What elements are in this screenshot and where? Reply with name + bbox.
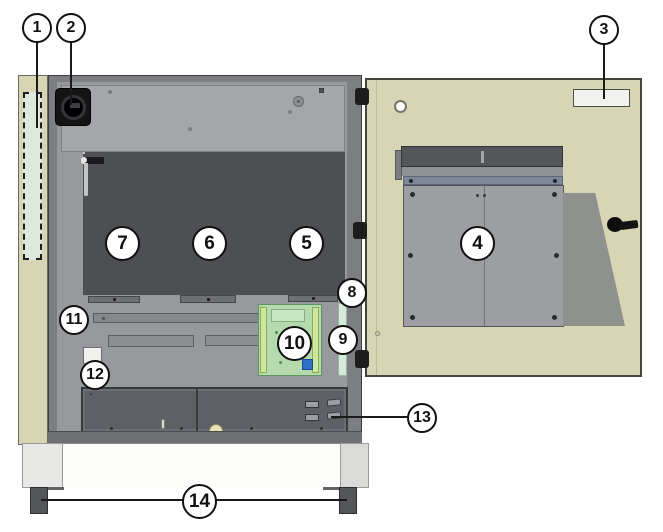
callout-4: 4 [460,226,495,261]
grille-lower-band [402,167,563,176]
pcb-component [271,309,305,322]
cable-slot [205,335,259,346]
base-rail-left [22,443,63,488]
door-hinge [355,88,369,105]
callout-3: 3 [589,15,619,45]
mounting-bracket [180,295,236,303]
pcb-edge-connector [312,307,319,373]
callout-10-label: 10 [284,334,305,353]
callout-11-label: 11 [66,312,83,328]
module-bay [83,152,345,295]
aux-connector [305,414,319,421]
leader-line-1 [36,42,38,128]
screw-icon [250,427,253,430]
mounting-bracket [288,295,338,302]
cable-slot [108,335,194,347]
pcb-relay [302,359,313,370]
pin-dot [476,194,479,197]
pcb-dot [279,361,282,364]
vent-slot [481,151,484,163]
mounting-bracket [88,296,140,303]
foot-tab [323,487,339,490]
door-hole [394,100,407,113]
callout-12-label: 12 [86,367,104,383]
screw-icon [554,253,559,258]
indicator-hole-grid [319,88,343,124]
screw-icon [110,427,113,430]
key-pin [161,419,165,429]
marked-side-region [23,92,42,260]
screw-icon [552,315,557,320]
rating-label [573,89,630,107]
indicator-hole [319,88,324,93]
pin-dot [483,194,486,197]
callout-11: 11 [59,305,89,335]
module-handle [84,158,88,196]
callout-7-label: 7 [117,234,128,253]
screw-icon [81,157,87,163]
callout-14: 14 [182,484,217,519]
callout-5: 5 [289,226,324,261]
rivet-dot [108,90,112,94]
leader-line-13 [331,416,408,418]
screw-icon [180,427,183,430]
callout-13: 13 [407,403,437,433]
screw-icon [552,192,557,197]
callout-5-label: 5 [301,234,312,253]
callout-3-label: 3 [600,22,609,38]
screw-icon [410,315,415,320]
rivet-dot [188,127,192,131]
callout-2: 2 [56,13,86,43]
callout-10: 10 [277,326,312,361]
callout-1: 1 [22,13,52,43]
leader-line-3 [603,44,605,99]
aux-connector [327,398,342,406]
callout-8-label: 8 [348,285,357,301]
power-module-5 [83,152,85,154]
leader-line-2 [70,42,72,105]
rotary-switch [55,88,91,126]
callout-9-label: 9 [339,332,348,348]
mounting-bar [403,176,563,185]
callout-12: 12 [80,360,110,390]
callout-14-label: 14 [189,492,210,511]
callout-7: 7 [105,226,140,261]
busbar-rail [93,313,259,323]
cabinet-bottom-band [48,431,362,443]
aux-connector [305,401,319,408]
door-hole-small [375,331,380,336]
callout-9: 9 [328,325,358,355]
screw-icon [320,427,323,430]
callout-6: 6 [192,226,227,261]
callout-8: 8 [337,278,367,308]
panel-seam [196,389,198,431]
foot-tab [48,487,64,490]
base-plinth [63,443,340,488]
top-panel [61,85,345,152]
pcb-edge-connector [260,307,267,373]
callout-2-label: 2 [67,20,76,36]
rivet-dot [288,110,292,114]
pcb-dot [275,331,278,334]
callout-1-label: 1 [33,20,42,36]
base-rail-right [340,443,369,488]
callout-4-label: 4 [472,234,483,253]
terminal-slot [90,393,92,395]
door-hinge [355,350,369,368]
screw-icon [408,253,413,258]
callout-13-label: 13 [413,410,431,426]
screw-icon [293,96,304,107]
callout-6-label: 6 [204,234,215,253]
door-hinge [353,222,367,239]
screw-icon [410,192,415,197]
door-vent-grille [401,146,563,167]
cabinet-diagram: 1 2 3 4 5 6 7 8 9 10 11 12 13 14 [0,0,663,532]
